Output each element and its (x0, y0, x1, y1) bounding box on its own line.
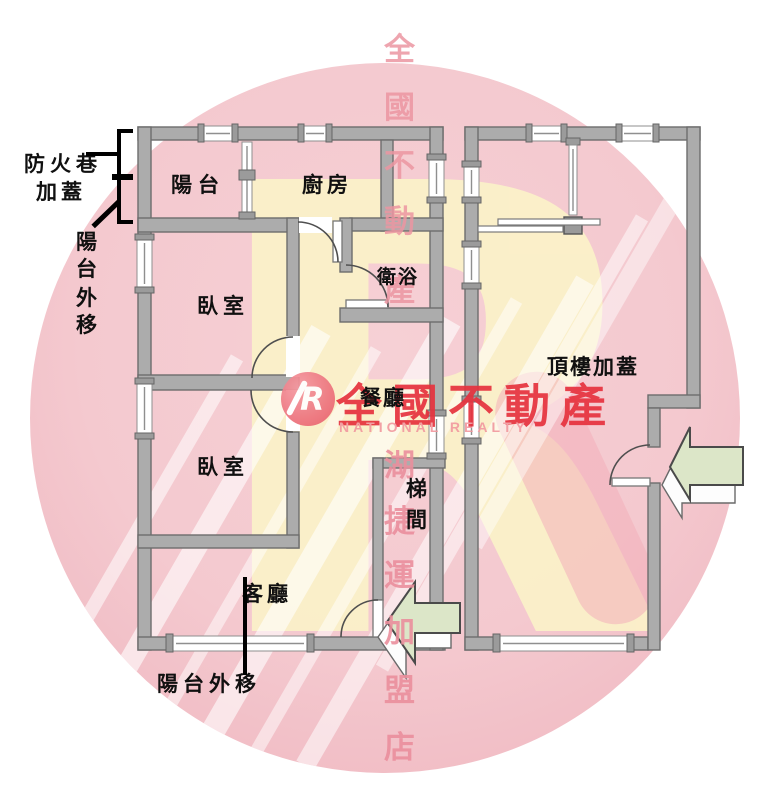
wall-bedroom-divider (138, 375, 299, 390)
brand-logo-badge: R (281, 372, 335, 426)
annotation-bottom-pointer-line (243, 577, 247, 675)
room-label-stairwell-char2: 間 (406, 504, 427, 534)
window (526, 124, 567, 142)
room-label-bathroom: 衛浴 (377, 262, 419, 289)
watermark-char: 動 (384, 206, 415, 237)
window (198, 124, 238, 142)
room-label-bedroom-upper: 臥室 (197, 290, 249, 320)
watermark-char: 運 (384, 560, 415, 591)
wall-bedroom-right-lower (287, 432, 299, 548)
door-gap (299, 217, 332, 233)
annotation-bracket-arm-mid (112, 174, 133, 180)
wall-stairwell-left (373, 458, 383, 600)
watermark-char: 全 (384, 34, 415, 65)
entrance-arrow-right (662, 427, 743, 518)
room-label-rooftop: 頂樓加蓋 (547, 351, 639, 381)
balcony-divider-window (239, 142, 255, 219)
wall-right-lower (648, 483, 660, 650)
room-label-dining: 餐廳 (360, 382, 406, 412)
room-label-kitchen: 廚房 (302, 169, 352, 199)
annotation-fire-lane-line2: 加蓋 (36, 176, 86, 206)
room-label-living: 客廳 (242, 578, 292, 608)
annotation-balcony-out-left-char2: 台 (76, 253, 97, 283)
room-label-bedroom-lower: 臥室 (197, 451, 249, 481)
wall-top (465, 127, 700, 140)
watermark-char: 加 (384, 616, 415, 647)
room-label-balcony: 陽台 (171, 169, 225, 199)
watermark-char: 不 (384, 150, 415, 181)
brand-name-en: NATIONAL REALTY (339, 419, 529, 435)
wall-right-mid (648, 408, 660, 447)
wall-right-upper (687, 127, 700, 408)
wall-bedroom-right-upper (287, 218, 299, 337)
window (616, 124, 659, 142)
door-stairwell (341, 600, 383, 637)
watermark-char: 店 (384, 732, 415, 763)
wall-balcony-bottom (138, 218, 299, 232)
window (166, 634, 314, 652)
window (427, 154, 446, 203)
annotation-pointer-line (86, 152, 118, 156)
floorplan-canvas: R (0, 0, 769, 800)
window (298, 124, 332, 142)
window (135, 234, 154, 293)
annotation-balcony-out-left-char1: 陽 (76, 226, 97, 256)
room-label-stairwell-char1: 梯 (406, 473, 427, 503)
annotation-bracket-arm-bottom (117, 220, 133, 224)
annotation-bracket-arm-top (117, 129, 133, 133)
wall-bath-bottom (340, 308, 443, 322)
wall-right-step (648, 395, 700, 408)
annotation-balcony-out-left-char3: 外 (76, 282, 97, 312)
watermark-char: 國 (384, 92, 415, 123)
wall-top (138, 127, 443, 140)
wall-living-top (138, 535, 299, 548)
door-gap (286, 336, 300, 377)
door-entrance-right (610, 445, 650, 486)
window (493, 634, 634, 652)
watermark-char: 盟 (384, 675, 415, 706)
window (462, 241, 481, 289)
annotation-balcony-out-left-char4: 移 (76, 309, 97, 339)
window (135, 378, 154, 439)
window (462, 161, 481, 203)
brand-monogram: R (300, 380, 325, 418)
